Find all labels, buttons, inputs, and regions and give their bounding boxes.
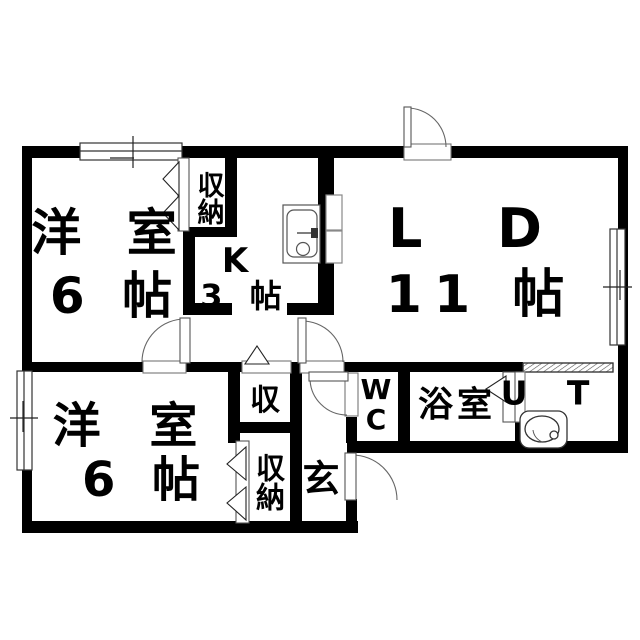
bedroom-upper-label: 洋 室 — [31, 208, 190, 258]
closet-mid-label: 収 — [250, 386, 282, 416]
kitchen-label: K — [222, 244, 250, 278]
door-closet-mid-icon — [242, 346, 291, 373]
window-left-icon — [10, 371, 38, 470]
wall-bedroom-lower-right — [228, 372, 240, 443]
wall-genkan-right-lower — [346, 499, 357, 533]
door-ld-top-icon — [404, 107, 451, 160]
door-bedroom-upper-icon — [142, 318, 190, 373]
door-wc-icon — [309, 372, 358, 416]
door-hall-corridor-icon — [298, 318, 344, 373]
entrance-label: 玄 — [303, 461, 342, 498]
kitchen-size: 3 帖 — [200, 280, 289, 312]
bedroom-lower-size: 6 帖 — [82, 456, 210, 504]
wall-wc-left-lower — [346, 417, 357, 443]
bedroom-upper-size: 6 帖 — [50, 271, 182, 321]
washbasin-icon — [520, 411, 567, 448]
wall-closet-upper-bottom — [183, 227, 237, 237]
door-closet-lower-folding-icon — [227, 441, 249, 523]
floor-plan: 洋 室 6 帖 K 3 帖 L D 11 帖 収納 収 収納 洋 室 6 帖 玄… — [0, 0, 640, 640]
wall-hall-bottom-2 — [186, 362, 242, 372]
living-dining-size: 11 帖 — [386, 269, 576, 321]
closet-upper-label: 収納 — [195, 171, 222, 225]
window-ut-hatched-icon — [523, 363, 613, 372]
door-entrance-icon — [345, 453, 397, 500]
closet-lower-label: 収納 — [254, 453, 283, 511]
utility-label: U T — [501, 377, 604, 410]
bathroom-label: 浴室 — [418, 389, 496, 424]
wc-label-line1: W — [361, 376, 392, 404]
wall-outer-bottom-left — [22, 521, 358, 533]
wall-wc-row-top — [344, 362, 523, 372]
window-top-icon — [80, 136, 182, 168]
bedroom-lower-label: 洋 室 — [53, 402, 214, 450]
wall-outer-bottom-right — [347, 441, 628, 453]
wall-corridor-left — [290, 372, 302, 521]
kitchen-sink-icon — [283, 195, 342, 263]
wall-closet-divider — [240, 422, 302, 433]
wall-hall-bottom-1 — [22, 362, 143, 372]
wc-label-line2: C — [366, 406, 387, 434]
wall-kitchen-bottom-right — [287, 303, 334, 315]
living-dining-label: L D — [388, 202, 570, 256]
wall-wc-bath-divider — [398, 372, 410, 441]
wall-closet-upper-right — [225, 158, 237, 237]
